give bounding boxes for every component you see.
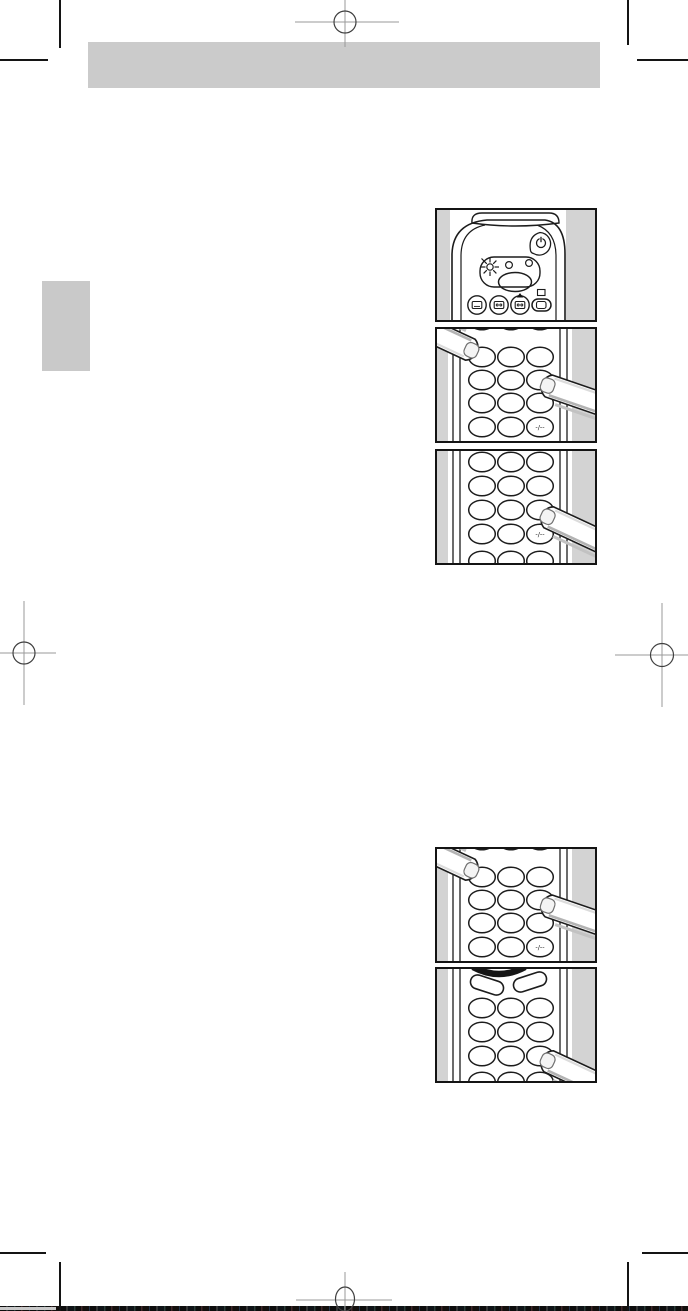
keypad-buttons [469,452,554,563]
tv-select-button [468,296,486,314]
panel-dot-left [506,262,513,269]
screen-square-icon [538,290,546,296]
scanned-manual-page: -/-- -/-- [0,0,688,1311]
figure-backdrop-left [437,210,450,320]
eject-triangle-icon [517,293,523,298]
panel-dot-right [526,260,533,267]
vcr-select-button [490,296,508,314]
registration-mark-right [615,603,688,707]
power-button [530,233,550,256]
sat-select-icon [515,302,525,309]
crop-mark-bottom-left-vertical [59,1262,61,1311]
select-oval-button [499,273,532,292]
device-buttons-row [468,290,551,315]
one-two-digit-label: -/-- [535,943,545,951]
registration-mark-top [295,0,399,50]
figure-keypad-two-fingers: -/-- [435,847,597,963]
figure-backdrop-right [566,210,595,320]
keypad-buttons [469,849,554,957]
crop-mark-bottom-right-vertical [627,1262,629,1311]
aux-select-button [532,299,551,311]
one-two-digit-label: -/-- [535,530,545,538]
scan-noise-strip-light [0,1307,56,1310]
crop-mark-top-right-horizontal [637,59,688,61]
led-blink-icon [481,258,499,276]
figure-keypad-one-finger: -/-- [435,449,597,565]
crop-mark-top-left-horizontal [0,59,48,61]
registration-mark-bottom [294,1264,396,1311]
sat-select-button [511,296,529,314]
crop-mark-bottom-left-horizontal [0,1252,46,1254]
vcr-select-icon [494,302,504,309]
tv-select-icon [472,302,482,309]
one-two-digit-label: -/-- [535,423,545,431]
figure-keypad-two-fingers: -/-- [435,327,597,443]
keypad-buttons [469,998,554,1081]
figure-keypad-rockers-one-finger [435,967,597,1083]
crop-mark-bottom-right-horizontal [642,1252,688,1254]
figure-remote-top-view [435,208,597,322]
aux-select-icon [537,302,547,309]
keypad-buttons [469,329,554,437]
registration-mark-left [0,601,60,705]
side-tab [42,281,90,371]
crop-mark-top-right-vertical [627,0,629,45]
crop-mark-top-left-vertical [59,0,61,48]
cursor-pad-bottom-arc [473,969,525,974]
